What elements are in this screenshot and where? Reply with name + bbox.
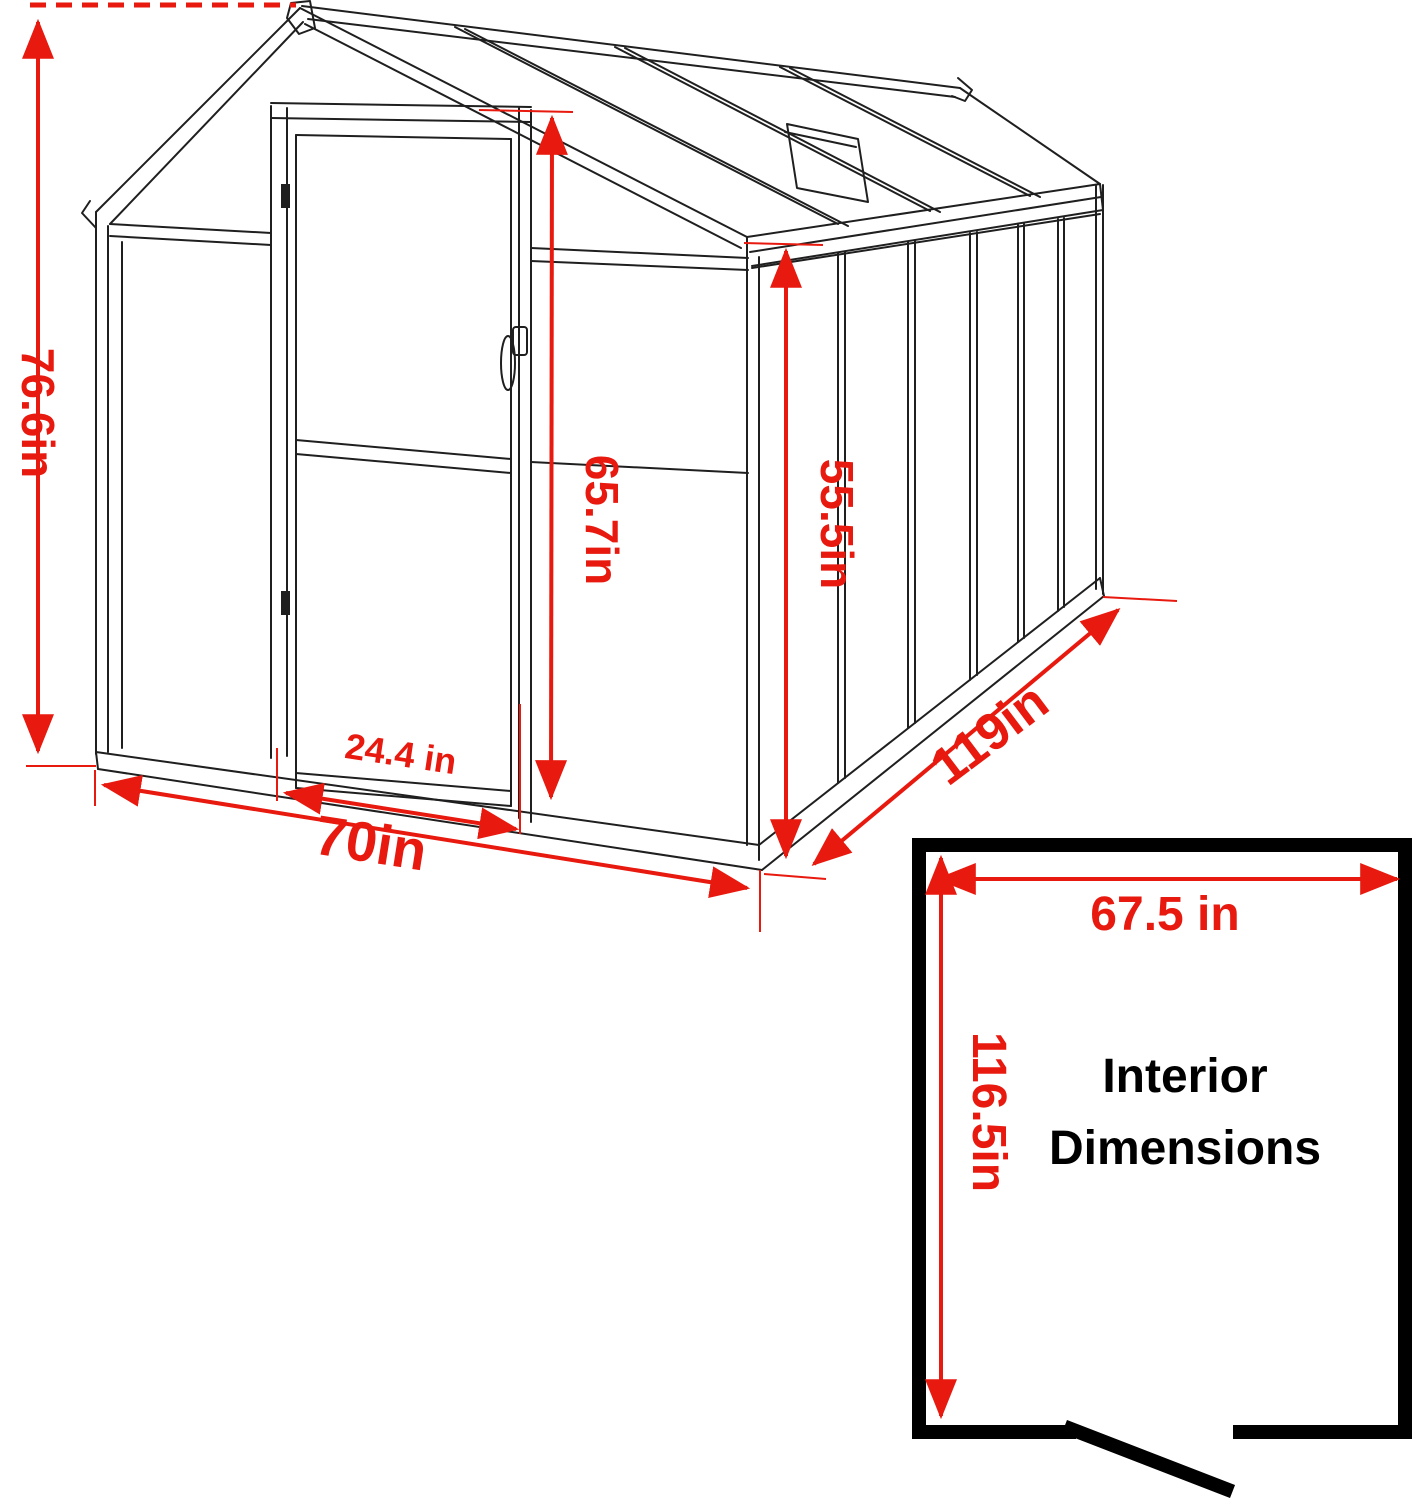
dimension-total-height: 76.6in [12,22,96,766]
dimension-interior-width: 67.5 in [939,879,1397,941]
dimension-label-side-wall-height: 55.5in [811,459,863,589]
dimension-label-depth: 119in [920,672,1059,797]
dimension-door-height: 65.7in [479,110,628,797]
dimension-label-interior-width: 67.5 in [1090,888,1239,941]
interior-heading-line2: Dimensions [1049,1122,1321,1175]
door [271,103,531,822]
dimension-label-interior-depth: 116.5in [962,1032,1015,1192]
greenhouse-dimension-diagram: 76.6in 70in 24.4 in 65.7in 55.5in 119in [0,0,1414,1500]
interior-heading-line1: Interior [1102,1050,1267,1103]
dimension-label-door-height: 65.7in [576,455,628,585]
rafter-3 [780,67,1030,196]
dimension-interior-depth: 116.5in [941,858,1015,1416]
diagram-canvas: 76.6in 70in 24.4 in 65.7in 55.5in 119in [0,0,1414,1500]
interior-heading: Interior Dimensions [1049,1050,1321,1175]
door-hinge-bottom [281,591,290,615]
dimension-label-door-width: 24.4 in [342,725,459,782]
dimension-label-total-height: 76.6in [12,348,64,478]
front-right-wall [531,237,759,860]
door-hinge-top [281,184,290,208]
front-left-wall [96,212,271,754]
interior-floor-plan-door-leaf [1071,1429,1226,1489]
rafter-1 [455,27,838,224]
dimension-front-width: 70in [95,770,760,932]
door-handle [501,327,527,390]
roof [302,6,1103,266]
front-gable [82,1,747,248]
roof-vent-window [785,124,868,202]
interior-dimensions-inset: 67.5 in 116.5in Interior Dimensions [919,845,1405,1489]
